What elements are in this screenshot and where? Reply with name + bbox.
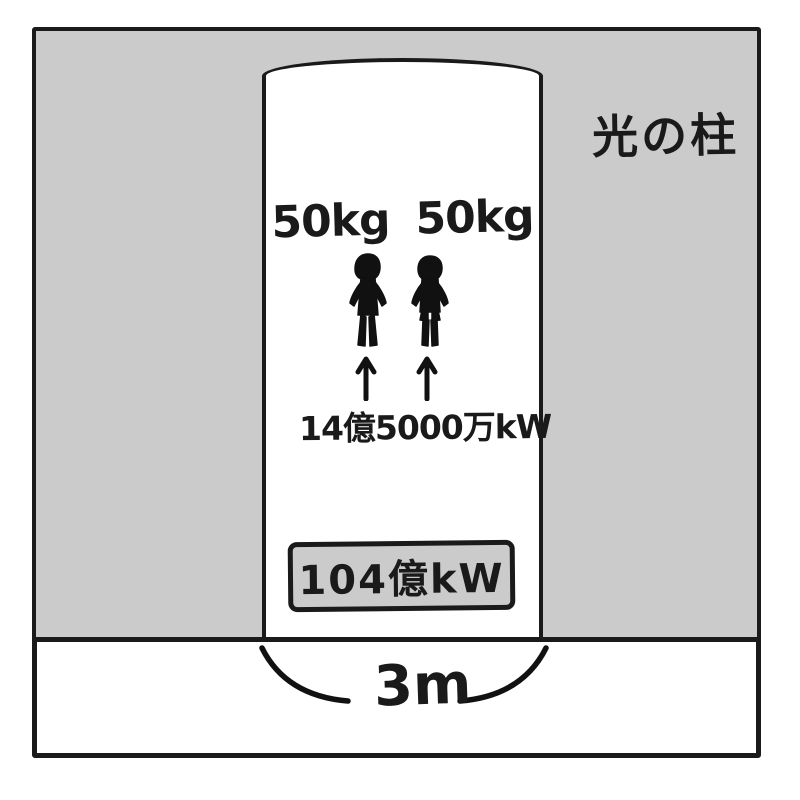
hand-drawn-diagram: 光の柱 50kg 50kg bbox=[0, 0, 800, 800]
person-silhouette-icon bbox=[344, 252, 392, 358]
up-arrow-icon bbox=[354, 355, 378, 405]
pillar-width-label: 3m bbox=[373, 651, 473, 719]
per-person-power-label: 14億5000万kW bbox=[299, 400, 552, 450]
person-silhouette-icon bbox=[406, 254, 454, 358]
up-arrow-icon bbox=[415, 355, 439, 405]
pillar-title-label: 光の柱 bbox=[591, 99, 739, 168]
weight-right-label: 50kg bbox=[415, 191, 534, 245]
weight-left-label: 50kg bbox=[271, 194, 390, 248]
total-power-box: 104億kW bbox=[288, 540, 516, 612]
weights-row: 50kg 50kg bbox=[261, 190, 543, 248]
total-power-label: 104億kW bbox=[298, 546, 505, 606]
ground-line bbox=[32, 637, 761, 642]
